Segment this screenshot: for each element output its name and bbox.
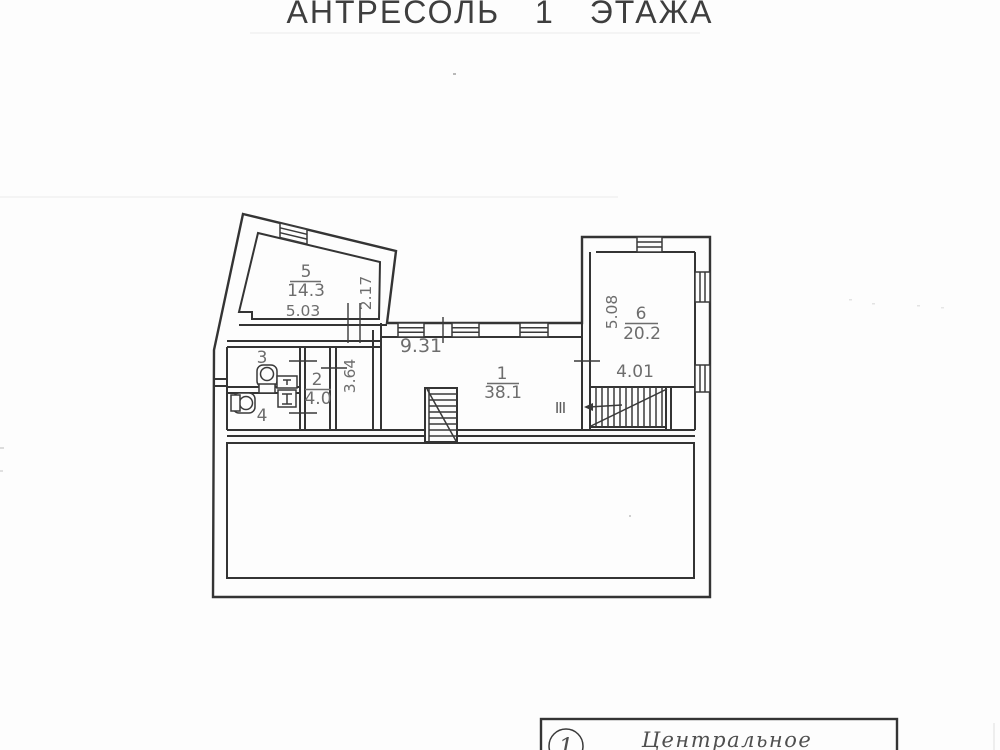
room6-label: 6 20.2 5.08 4.01: [603, 295, 661, 382]
room1-number: 1: [497, 364, 508, 384]
window-band-room1-2: [452, 323, 479, 337]
room2-number: 2: [312, 370, 323, 390]
room5-area: 14.3: [287, 281, 325, 301]
room4-number: 4: [257, 406, 268, 426]
lower-hall-walls: [227, 443, 694, 578]
dim-3-64: 3.64: [341, 359, 359, 394]
window-room6-top: [637, 237, 662, 252]
room5-number: 5: [301, 262, 312, 282]
dim-5-08: 5.08: [603, 295, 621, 330]
dim-5-03: 5.03: [286, 302, 321, 320]
dim-9-31: 9.31: [400, 335, 442, 357]
room6-area: 20.2: [623, 324, 661, 344]
room5-label: 5 14.3 5.03 2.17: [286, 262, 375, 320]
toilet-room4: [231, 393, 255, 413]
stair-right: [584, 387, 667, 427]
toilet-room3: [257, 365, 277, 393]
stairwell-mark: III: [555, 399, 565, 417]
room2-label: 2 4.0 3.64: [304, 359, 359, 409]
dim-4-01: 4.01: [616, 362, 654, 382]
sink-unit: [277, 376, 297, 407]
room2-area: 4.0: [304, 389, 331, 409]
room1-area: 38.1: [484, 383, 522, 403]
room1-label: 1 38.1 9.31: [400, 335, 522, 403]
room3-label: 3: [257, 348, 268, 368]
window-right-2: [695, 365, 710, 392]
room3-number: 3: [257, 348, 268, 368]
window-room5-top: [280, 223, 307, 244]
dim-2-17: 2.17: [357, 276, 375, 311]
stamp-sheet-number: 1: [558, 733, 573, 750]
stamp-district-label: Центральное: [641, 728, 813, 750]
room4-label: 4: [257, 406, 268, 426]
floor-plan-drawing: 5 14.3 5.03 2.17 3 4 2 4.0 3.64 1: [0, 0, 1000, 750]
stair-middle: [425, 388, 457, 442]
window-right-1: [695, 272, 710, 302]
window-band-room1-3: [520, 323, 548, 337]
room6-number: 6: [636, 304, 647, 324]
stamp-box: 1 Центральное: [541, 719, 897, 750]
scanned-floor-plan-page: АНТРЕСОЛЬ 1 ЭТАЖА: [0, 0, 1000, 750]
